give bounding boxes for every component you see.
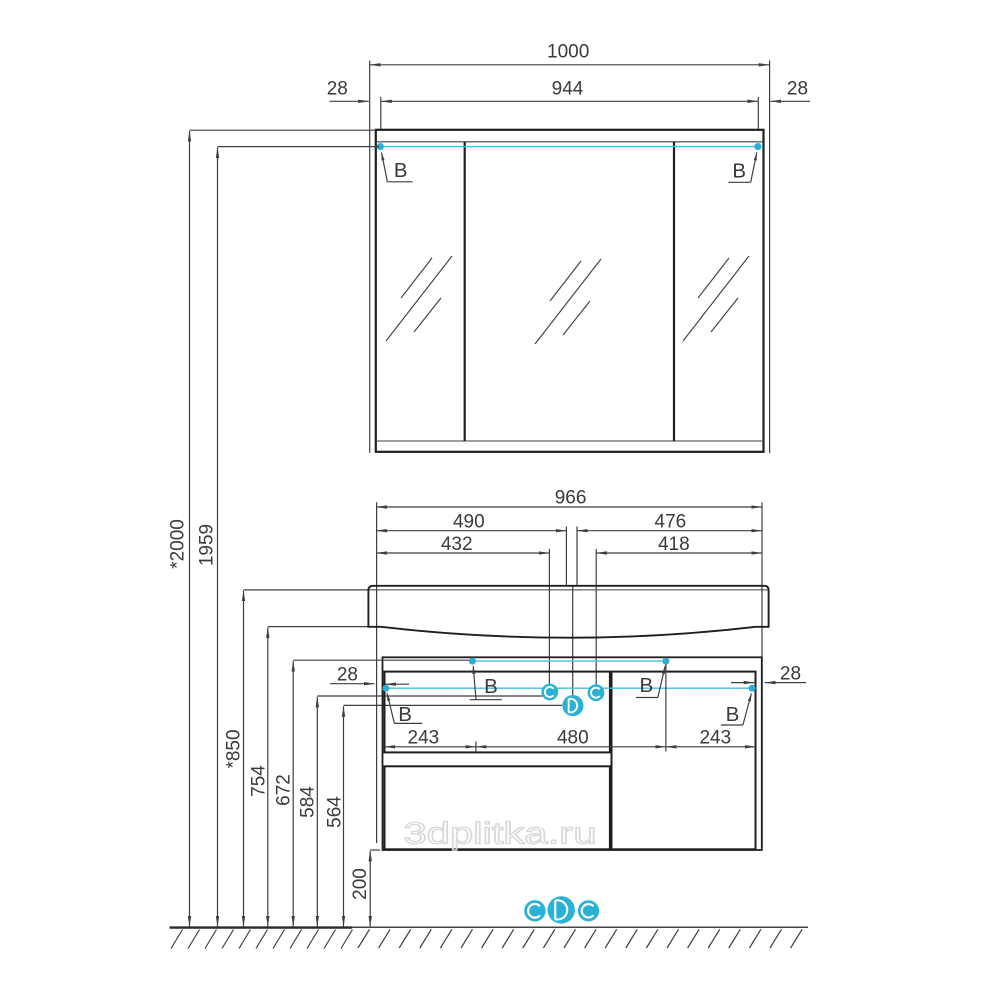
svg-text:418: 418 — [658, 534, 690, 555]
svg-text:3dplitka.ru: 3dplitka.ru — [404, 817, 597, 851]
svg-text:B: B — [484, 675, 498, 698]
svg-text:476: 476 — [655, 511, 687, 532]
svg-text:672: 672 — [274, 774, 295, 806]
svg-text:*850: *850 — [224, 729, 245, 768]
svg-text:480: 480 — [557, 728, 589, 749]
svg-text:243: 243 — [408, 727, 440, 748]
svg-text:*2000: *2000 — [168, 519, 189, 569]
svg-text:490: 490 — [453, 511, 485, 532]
svg-text:1000: 1000 — [547, 42, 589, 63]
svg-text:B: B — [732, 160, 746, 183]
svg-text:564: 564 — [325, 796, 346, 828]
svg-text:28: 28 — [337, 664, 358, 685]
svg-text:B: B — [394, 159, 408, 182]
svg-text:28: 28 — [327, 79, 348, 100]
svg-text:243: 243 — [699, 728, 731, 749]
svg-text:B: B — [639, 674, 653, 697]
svg-text:1959: 1959 — [197, 524, 218, 566]
svg-text:944: 944 — [552, 79, 584, 100]
svg-text:28: 28 — [780, 663, 801, 684]
svg-text:200: 200 — [350, 868, 371, 900]
svg-text:B: B — [726, 703, 740, 726]
svg-text:584: 584 — [298, 786, 319, 818]
svg-text:966: 966 — [555, 488, 587, 509]
svg-text:754: 754 — [249, 765, 270, 797]
svg-text:B: B — [398, 703, 412, 726]
svg-text:432: 432 — [441, 534, 473, 555]
svg-text:28: 28 — [787, 79, 808, 100]
